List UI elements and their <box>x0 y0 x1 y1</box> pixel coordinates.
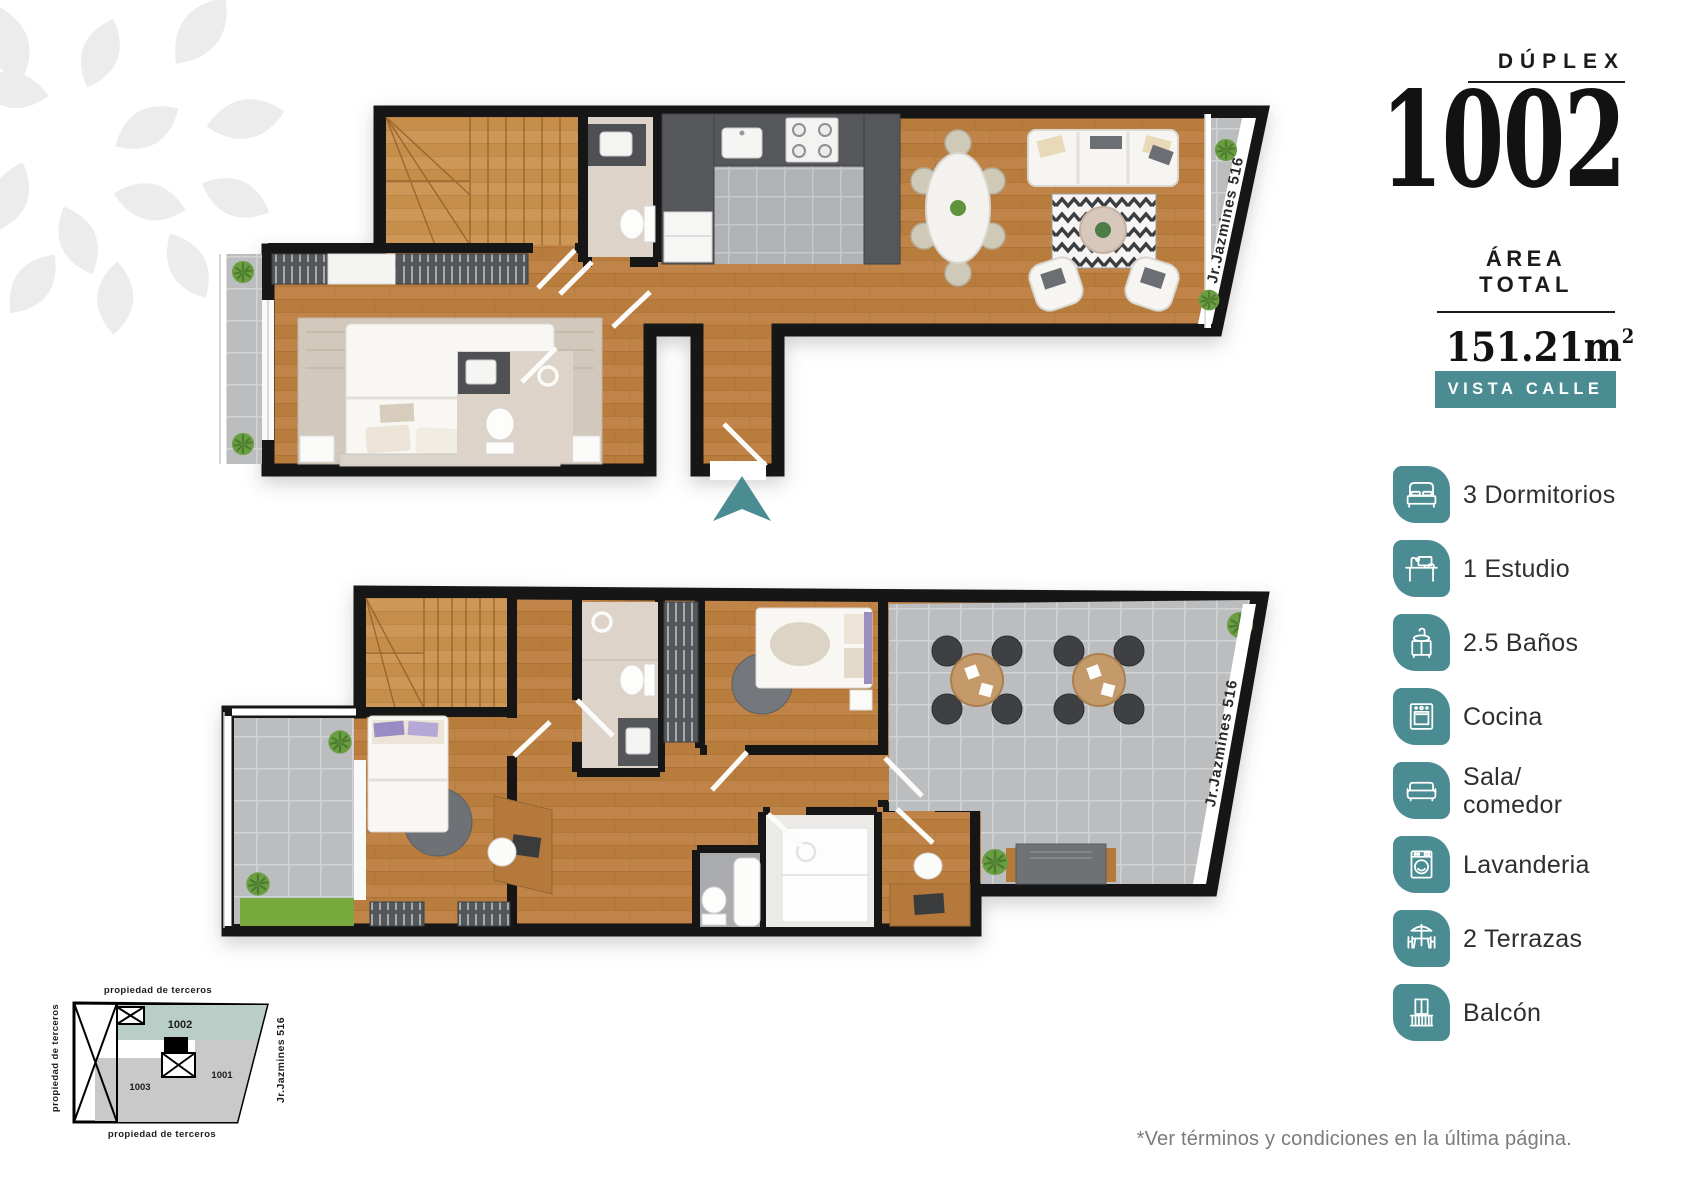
desk-icon <box>1393 540 1450 597</box>
sofa-icon <box>1393 762 1450 819</box>
bath-sink-icon <box>1393 614 1450 671</box>
feature-study: 1 Estudio <box>1393 540 1616 597</box>
oven-icon <box>1393 688 1450 745</box>
area-value-exponent: 2 <box>1622 324 1635 348</box>
bed-icon <box>1393 466 1450 523</box>
feature-label: 3 Dormitorios <box>1463 481 1616 509</box>
site-unit-label: 1003 <box>129 1082 150 1093</box>
feature-living-dining: Sala/ comedor <box>1393 762 1616 819</box>
feature-label: Sala/ comedor <box>1463 763 1562 819</box>
feature-label: Lavanderia <box>1463 851 1590 879</box>
feature-laundry: Lavanderia <box>1393 836 1616 893</box>
view-badge: VISTA CALLE <box>1435 371 1616 408</box>
site-unit-label: 1002 <box>168 1019 192 1031</box>
feature-bedrooms: 3 Dormitorios <box>1393 466 1616 523</box>
terms-disclaimer: *Ver términos y condiciones en la última… <box>1137 1128 1572 1151</box>
feature-label: Balcón <box>1463 999 1541 1027</box>
area-total-value: 151.21m2 <box>1446 324 1606 371</box>
site-plan: propiedad de terceros propiedad de terce… <box>50 985 287 1140</box>
unit-number: 1002 <box>1380 86 1625 197</box>
site-label-bottom: propiedad de terceros <box>108 1129 216 1140</box>
balcony-icon <box>1393 984 1450 1041</box>
feature-label: 2 Terrazas <box>1463 925 1582 953</box>
area-total-block: ÁREA TOTAL 151.21m2 <box>1437 246 1615 371</box>
laundry-room <box>766 814 874 927</box>
feature-label: 1 Estudio <box>1463 555 1570 583</box>
terrace-lower-left <box>224 712 366 928</box>
entry-arrow-icon <box>713 476 771 521</box>
feature-list: 3 Dormitorios 1 Estudio 2.5 Baños Cocina <box>1393 466 1616 1041</box>
area-divider <box>1437 311 1615 313</box>
lower-floor-plan: Jr.Jazmines 516 <box>224 592 1262 930</box>
area-value-text: 151.21m <box>1446 324 1622 371</box>
site-label-top: propiedad de terceros <box>104 985 212 996</box>
feature-bathrooms: 2.5 Baños <box>1393 614 1616 671</box>
site-unit-label: 1001 <box>211 1070 233 1081</box>
brochure-page: Jr.Jazmines 516 <box>0 0 1684 1190</box>
bathroom-4 <box>700 853 760 927</box>
feature-kitchen: Cocina <box>1393 688 1616 745</box>
area-total-label: ÁREA TOTAL <box>1437 246 1615 298</box>
upper-floor-plan: Jr.Jazmines 516 <box>220 112 1262 480</box>
feature-balcony: Balcón <box>1393 984 1616 1041</box>
stairs-upper <box>386 117 579 245</box>
kitchen <box>662 114 900 264</box>
washing-machine-icon <box>1393 836 1450 893</box>
feature-terraces: 2 Terrazas <box>1393 910 1616 967</box>
closet <box>664 602 698 742</box>
site-street-label: Jr.Jazmines 516 <box>275 1017 287 1103</box>
terrace-icon <box>1393 910 1450 967</box>
bathroom-3 <box>577 602 658 768</box>
stairs-lower <box>366 598 512 708</box>
feature-label: 2.5 Baños <box>1463 629 1578 657</box>
bathroom-2 <box>457 348 573 462</box>
feature-label: Cocina <box>1463 703 1543 731</box>
site-label-left: propiedad de terceros <box>50 1004 61 1112</box>
